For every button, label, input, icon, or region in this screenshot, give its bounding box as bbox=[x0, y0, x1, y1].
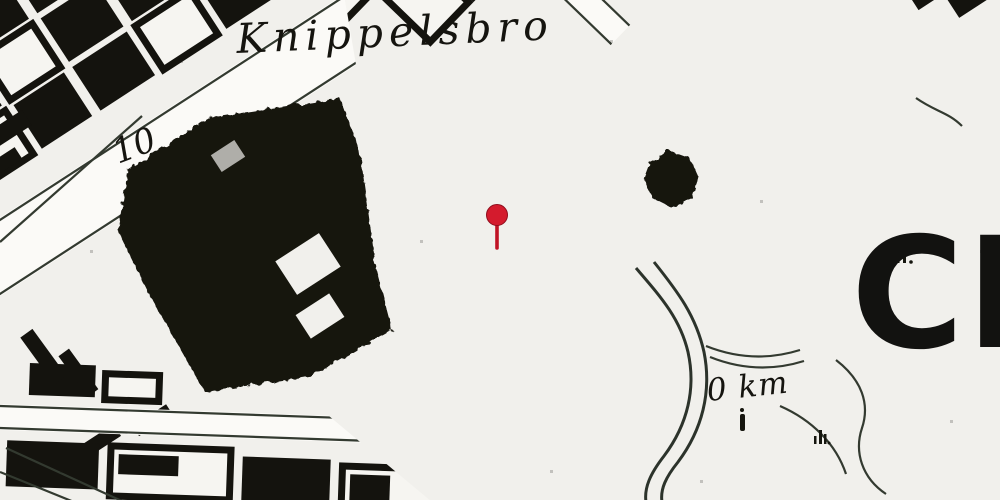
map-viewport[interactable]: 2 bbox=[0, 0, 1000, 500]
map-canvas[interactable]: 2 bbox=[0, 0, 1000, 500]
pin-head-icon bbox=[487, 205, 508, 226]
district-initials-label: CH bbox=[851, 205, 1000, 384]
